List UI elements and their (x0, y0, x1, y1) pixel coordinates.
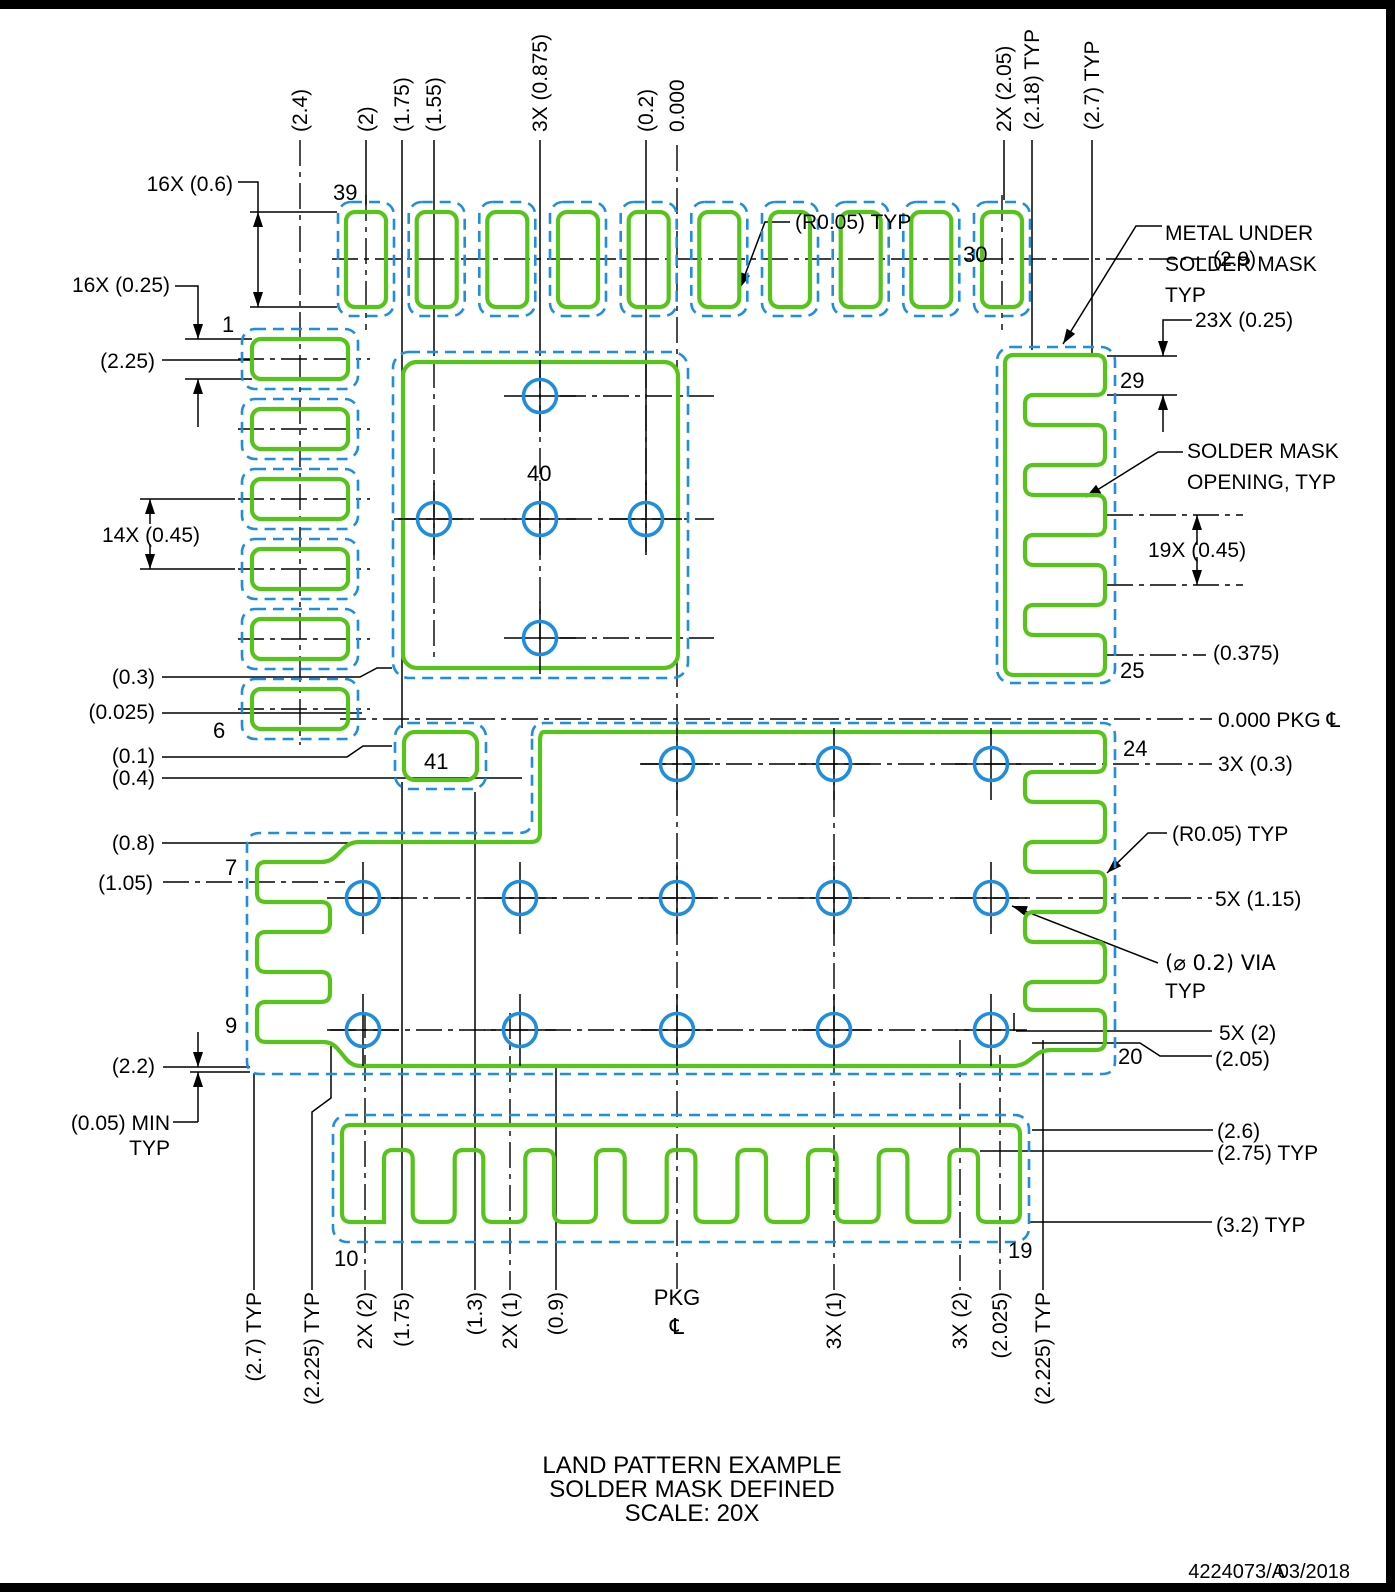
dim-bottom-2: 2X (2) (354, 1292, 377, 1349)
dim-top-8: (2.18) TYP (1021, 29, 1044, 130)
callout-smo-1: SOLDER MASK (1187, 440, 1339, 463)
callout-via-1: (⌀ 0.2) VIA (1165, 951, 1276, 975)
pad-number-24: 24 (1123, 736, 1147, 761)
dim-005-min: (0.05) MIN (71, 1112, 170, 1135)
dim-0025: (0.025) (88, 701, 155, 724)
pad-number-29: 29 (1120, 368, 1144, 393)
dim-32-typ: (3.2) TYP (1216, 1214, 1305, 1237)
dim-22: (2.2) (112, 1055, 155, 1078)
dim-pkg-centerline: 0.000 PKG ℄ (1218, 708, 1341, 732)
pad-number-39: 39 (333, 180, 357, 205)
pad-number-10: 10 (334, 1246, 358, 1271)
pad-number-20: 20 (1118, 1044, 1142, 1069)
pkg-label: PKG (654, 1285, 700, 1310)
solder-mask-openings (242, 202, 1115, 1242)
dim-16x025: 16X (0.25) (72, 274, 170, 297)
dim-bottom-3: (1.75) (391, 1292, 414, 1347)
dim-14x045: 14X (0.45) (102, 524, 200, 547)
land-pattern-drawing: (2.4) (2) (1.75) (1.55) 3X (0.875) (0.2)… (0, 0, 1395, 1592)
centerlines (163, 140, 1243, 1290)
dim-08: (0.8) (112, 832, 155, 855)
dim-top-9: (2.7) TYP (1081, 41, 1104, 130)
dim-5x115: 5X (1.15) (1215, 888, 1301, 911)
right-comb-mask (997, 347, 1115, 683)
package-centerline-marker: PKG ℄ (654, 1285, 700, 1340)
dim-top-7: 2X (2.05) (993, 46, 1016, 132)
pad-number-41: 41 (424, 749, 448, 774)
callout-via-2: TYP (1165, 980, 1206, 1003)
dim-3x03: 3X (0.3) (1218, 753, 1293, 776)
callout-smo-2: OPENING, TYP (1187, 471, 1336, 494)
bottom-comb-copper (342, 1125, 1020, 1222)
dim-top-2: (1.75) (391, 77, 414, 132)
dim-top-6: 0.000 (666, 79, 689, 132)
dim-bottom-1: (2.225) TYP (301, 1292, 324, 1405)
dim-top-3: (1.55) (423, 77, 446, 132)
dim-top-5: (0.2) (635, 89, 658, 132)
title-block: LAND PATTERN EXAMPLE SOLDER MASK DEFINED… (542, 1452, 841, 1527)
dim-bottom-5: 2X (1) (499, 1292, 522, 1349)
footer-date: 03/2018 (1278, 1561, 1350, 1583)
dim-bottom-10: (2.225) TYP (1032, 1292, 1055, 1405)
dim-bottom-8: 3X (2) (949, 1292, 972, 1349)
dim-23x025: 23X (0.25) (1195, 309, 1293, 332)
dim-205: (2.05) (1215, 1048, 1270, 1071)
dim-19x045: 19X (0.45) (1148, 539, 1246, 562)
callout-metal-3: TYP (1165, 284, 1206, 307)
dimension-arrows (145, 212, 1202, 1087)
pad-number-40: 40 (527, 461, 551, 486)
drawing-sheet: (2.4) (2) (1.75) (1.55) 3X (0.875) (0.2)… (0, 0, 1395, 1592)
labels-left: 16X (0.6) 16X (0.25) (2.25) 14X (0.45) (… (71, 173, 233, 1160)
dim-0375: (0.375) (1213, 642, 1280, 665)
dim-5x2: 5X (2) (1219, 1022, 1276, 1045)
copper-lands (252, 212, 1105, 1222)
dim-bottom-9: (2.025) (989, 1292, 1012, 1359)
dim-04: (0.4) (112, 767, 155, 790)
right-comb-copper (1005, 355, 1105, 675)
pad-numbers: 39 30 1 6 40 41 7 9 10 19 20 24 25 29 (213, 180, 1147, 1271)
dim-16x06: 16X (0.6) (147, 173, 233, 196)
footer-doc-number: 4224073/A (1188, 1561, 1285, 1583)
dim-01: (0.1) (112, 745, 155, 768)
pad-number-1: 1 (222, 312, 234, 337)
pad-number-25: 25 (1120, 658, 1144, 683)
footer: 4224073/A 03/2018 (1188, 1561, 1350, 1583)
labels-bottom: (2.7) TYP (2.225) TYP 2X (2) (1.75) (1.3… (243, 1292, 1055, 1405)
pad-number-6: 6 (213, 718, 225, 743)
dim-top-1: (2) (355, 106, 378, 132)
center-pad-copper (257, 732, 1105, 1066)
dim-29: (2.9) (1213, 248, 1256, 271)
dim-26: (2.6) (1217, 1120, 1260, 1143)
title-line-2: SOLDER MASK DEFINED (549, 1476, 834, 1503)
dim-top-4: 3X (0.875) (529, 34, 552, 132)
pad-number-7: 7 (225, 855, 237, 880)
dim-225: (2.25) (100, 350, 155, 373)
labels-top: (2.4) (2) (1.75) (1.55) 3X (0.875) (0.2)… (289, 29, 1104, 132)
title-line-1: LAND PATTERN EXAMPLE (542, 1452, 841, 1479)
dim-r005-right: (R0.05) TYP (1172, 823, 1288, 846)
dim-03: (0.3) (112, 666, 155, 689)
pad-number-19: 19 (1008, 1238, 1032, 1263)
dim-105: (1.05) (98, 872, 153, 895)
pad-number-9: 9 (225, 1013, 237, 1038)
dim-bottom-6: (0.9) (545, 1292, 568, 1335)
dim-bottom-4: (1.3) (464, 1292, 487, 1335)
dim-bottom-0: (2.7) TYP (243, 1292, 266, 1381)
callout-metal-1: METAL UNDER (1165, 222, 1313, 245)
dim-top-0: (2.4) (289, 89, 312, 132)
centerline-symbol: ℄ (669, 1315, 685, 1340)
dim-005-typ: TYP (129, 1137, 170, 1160)
pad-number-30: 30 (963, 242, 987, 267)
title-line-3: SCALE: 20X (625, 1500, 760, 1527)
dim-bottom-7: 3X (1) (823, 1292, 846, 1349)
dim-r005-top: (R0.05) TYP (795, 211, 911, 234)
dim-275-typ: (2.75) TYP (1217, 1142, 1318, 1165)
